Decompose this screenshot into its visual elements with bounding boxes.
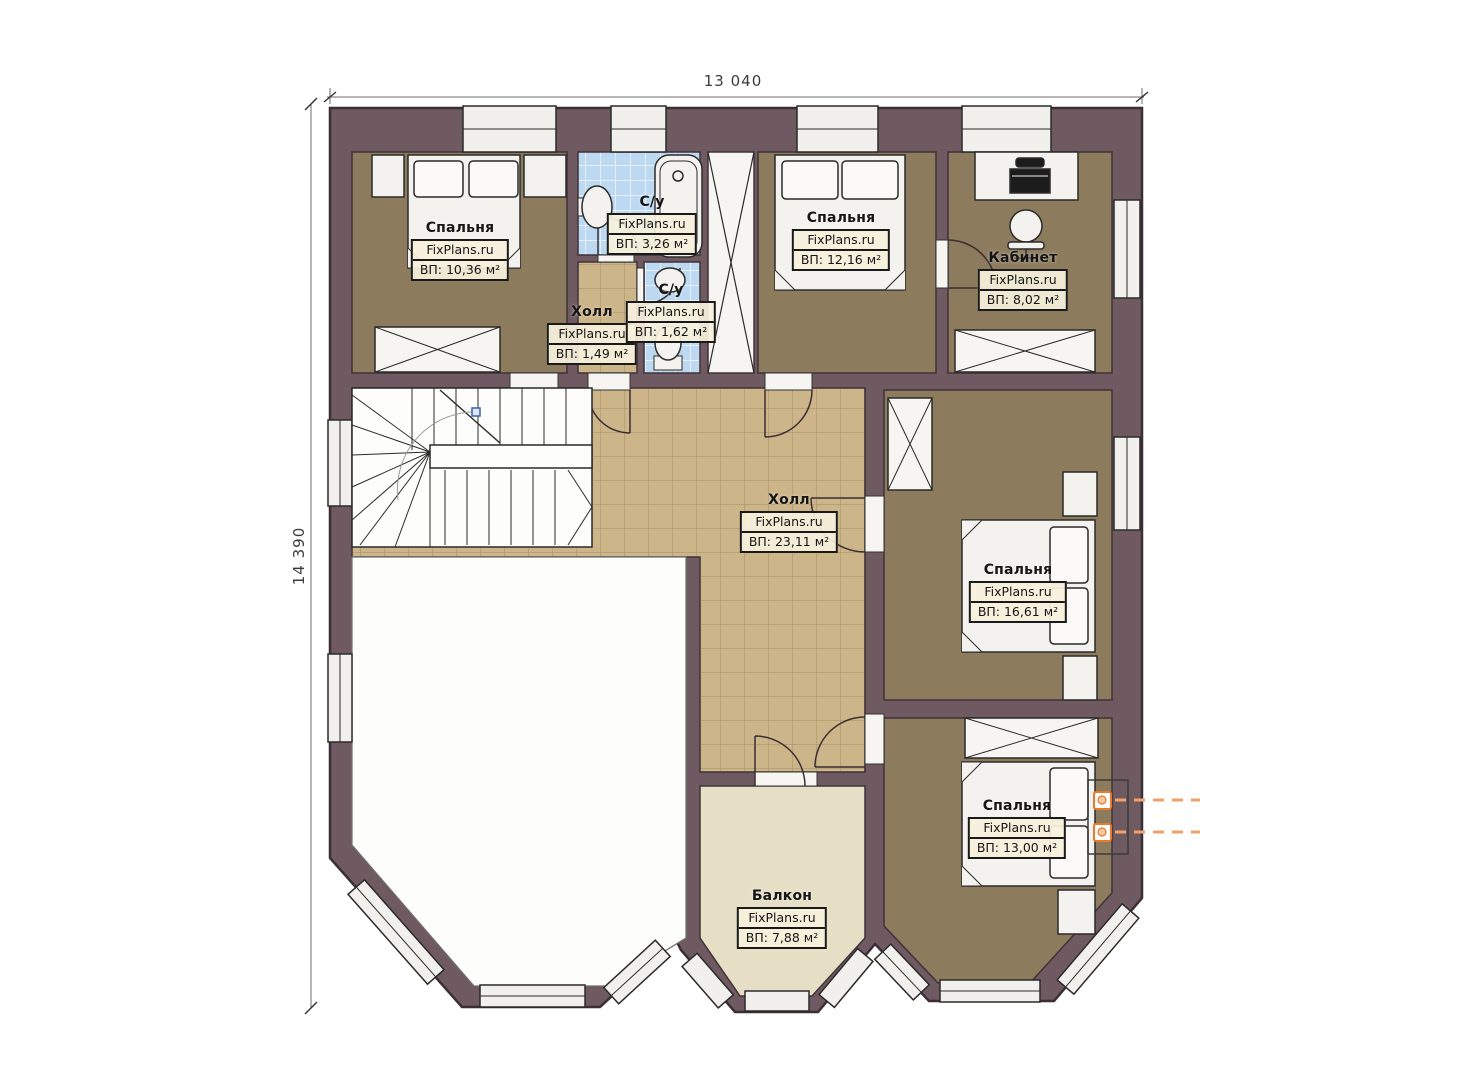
radiator-icon bbox=[1094, 823, 1200, 841]
sink-bathroom-2 bbox=[655, 268, 685, 292]
wardrobe-bedroom-3 bbox=[888, 398, 932, 490]
stair-direction-marker bbox=[472, 408, 480, 416]
floor-plan-page: 13 040 14 390 Спальня FixPlans.ru ВП: 10… bbox=[0, 0, 1473, 1080]
staircase bbox=[352, 388, 592, 547]
balcony-floor bbox=[700, 786, 865, 996]
wardrobe-study bbox=[955, 330, 1095, 372]
bed-bedroom-2 bbox=[775, 155, 905, 290]
wardrobe-bedroom-4 bbox=[965, 718, 1098, 758]
floor-plan-canvas bbox=[0, 0, 1473, 1080]
radiator-icon bbox=[1094, 791, 1200, 809]
dimension-width: 13 040 bbox=[704, 72, 763, 90]
bathtub bbox=[655, 155, 702, 257]
wardrobe-bedroom-1 bbox=[375, 327, 500, 372]
toilet bbox=[654, 326, 682, 370]
dimension-height: 14 390 bbox=[290, 527, 308, 586]
desk bbox=[975, 152, 1078, 200]
hall-small-floor bbox=[578, 262, 637, 373]
